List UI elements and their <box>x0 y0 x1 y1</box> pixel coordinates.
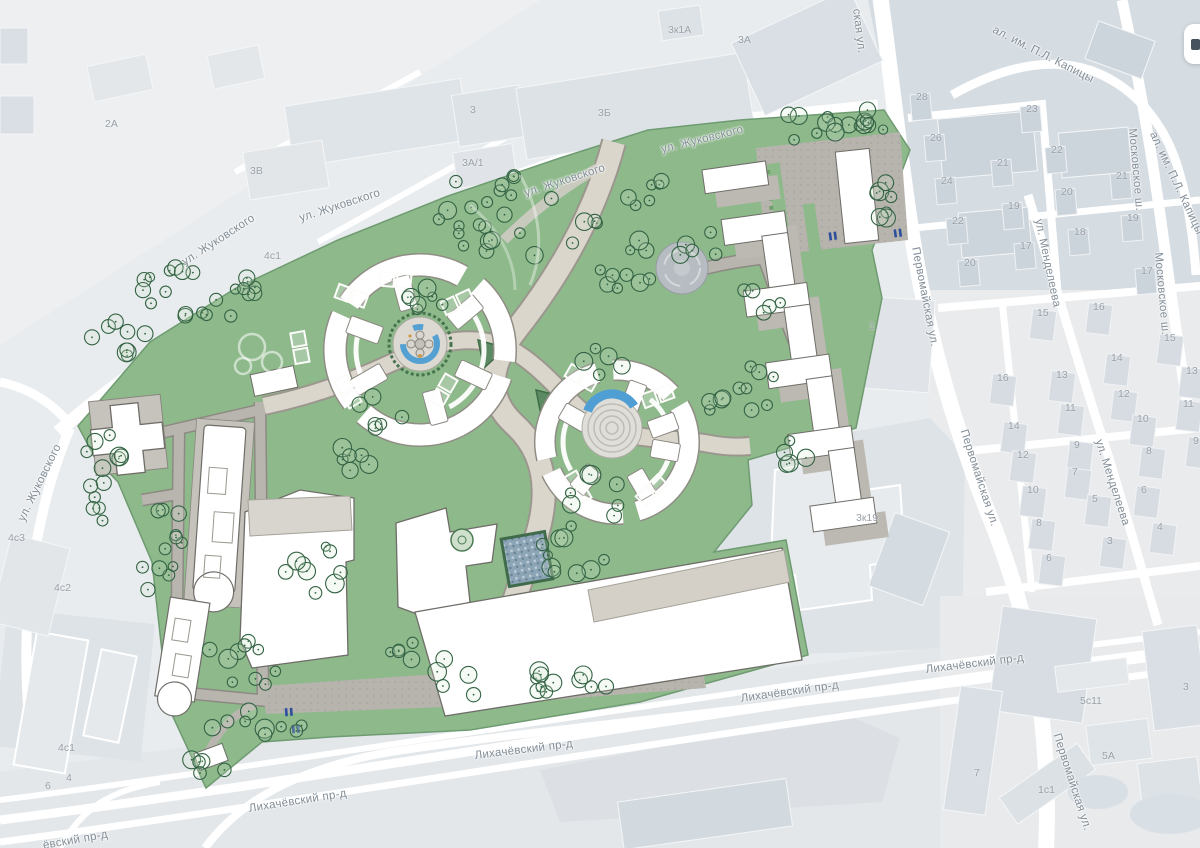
map-control-button[interactable] <box>1184 24 1200 64</box>
map-graphics <box>0 0 1200 848</box>
panel-icon <box>1191 39 1200 50</box>
map-canvas[interactable]: ул. Жуковскогоул. Жуковскогоул. Жуковско… <box>0 0 1200 848</box>
